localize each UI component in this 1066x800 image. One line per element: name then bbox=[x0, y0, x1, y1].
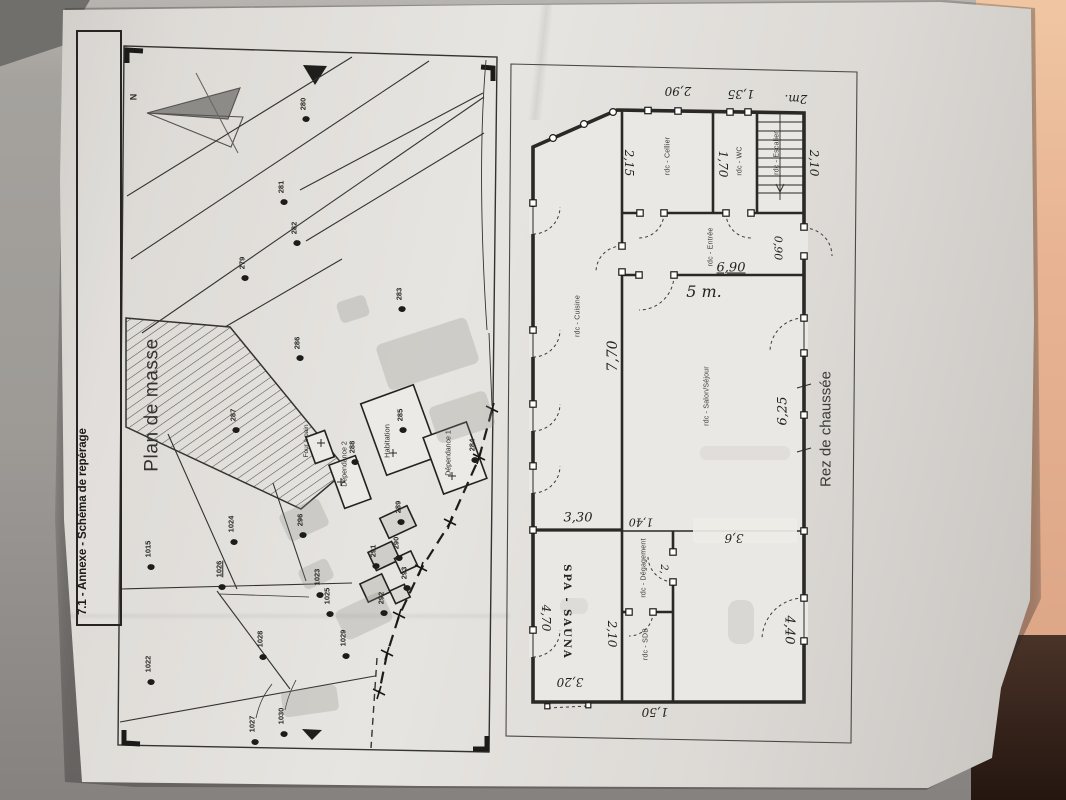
parcel-dot bbox=[397, 518, 406, 526]
parcel-dot bbox=[280, 730, 289, 738]
document-title: 7.1 - Annexe - Schéma de repérage bbox=[77, 428, 89, 615]
building-label: Four à pain bbox=[304, 425, 311, 458]
building-label: Dépendance 2 bbox=[342, 441, 349, 487]
parcel-dot bbox=[299, 531, 308, 539]
parcel-dot bbox=[372, 562, 381, 570]
room-label: rdc - SDB bbox=[643, 628, 650, 660]
photo-of-document: Plan de masse N Rez de chaussée 28028128… bbox=[0, 0, 1066, 800]
parcel-number: 296 bbox=[296, 514, 304, 527]
parcel-number: 280 bbox=[299, 98, 307, 111]
dimension-label: 1,35 bbox=[728, 88, 755, 100]
parcel-dot bbox=[293, 239, 302, 247]
building-label: Dépendance 1 bbox=[446, 430, 453, 476]
dimension-label: 3,30 bbox=[564, 512, 593, 525]
dimension-label: 4,40 bbox=[783, 616, 796, 645]
parcel-number: 293 bbox=[400, 567, 408, 580]
parcel-dot bbox=[147, 678, 156, 686]
dimension-label: 3,20 bbox=[557, 676, 584, 688]
dimension-label: 6,25 bbox=[777, 397, 790, 426]
dimension-label: 5 m. bbox=[686, 284, 722, 300]
dimension-label: 1,40 bbox=[629, 517, 654, 528]
room-label: rdc - Escalier bbox=[774, 131, 781, 175]
paper-sheet: Plan de masse N Rez de chaussée 28028128… bbox=[0, 0, 1066, 800]
parcel-number: 287 bbox=[229, 409, 237, 422]
parcel-dot bbox=[232, 426, 241, 434]
parcel-dot bbox=[251, 738, 260, 746]
north-label: N bbox=[130, 94, 139, 101]
parcel-number: 286 bbox=[293, 337, 301, 350]
parcel-dot bbox=[241, 274, 250, 282]
parcel-number: 1025 bbox=[323, 588, 331, 605]
parcel-dot bbox=[399, 426, 408, 434]
parcel-dot bbox=[218, 583, 227, 591]
room-label: rdc - Cuisine bbox=[575, 295, 582, 337]
parcel-number: 292 bbox=[377, 592, 385, 605]
dimension-label: 2,10 bbox=[606, 621, 618, 648]
dimension-label: 4,70 bbox=[540, 605, 552, 632]
parcel-dot bbox=[280, 198, 289, 206]
document-title-strip: 7.1 - Annexe - Schéma de repérage bbox=[76, 30, 122, 626]
parcel-dot bbox=[398, 305, 407, 313]
parcel-number: 291 bbox=[369, 545, 377, 558]
parcel-number: 1030 bbox=[277, 708, 285, 725]
parcel-number: 284 bbox=[468, 439, 476, 452]
parcel-dot bbox=[471, 456, 480, 464]
parcel-number: 290 bbox=[392, 537, 400, 550]
parcel-dot bbox=[230, 538, 239, 546]
dimension-label: 2,15 bbox=[623, 150, 635, 177]
dimension-label: 1,50 bbox=[642, 706, 669, 718]
parcel-dot bbox=[342, 652, 351, 660]
room-label: rdc - Entrée bbox=[708, 228, 715, 267]
dimension-label: 1,70 bbox=[717, 151, 729, 178]
parcel-dot bbox=[403, 584, 412, 592]
dimension-label: 2,10 bbox=[808, 150, 820, 177]
parcel-number: 282 bbox=[290, 222, 298, 235]
room-label: rdc - Dégagement bbox=[641, 538, 648, 597]
floor-plan-title: Rez de chaussée bbox=[819, 371, 834, 487]
room-label: rdc - Cellier bbox=[665, 137, 672, 175]
parcel-number: 289 bbox=[394, 501, 402, 514]
parcel-dot bbox=[380, 609, 389, 617]
dimension-label: 0,90 bbox=[773, 236, 784, 261]
parcel-number: 1026 bbox=[215, 561, 223, 578]
parcel-number: 1027 bbox=[248, 716, 256, 733]
parcel-number: 285 bbox=[396, 409, 404, 422]
room-label: rdc - Salon/Séjour bbox=[704, 366, 711, 426]
parcel-number: 288 bbox=[348, 441, 356, 454]
parcel-number: 1028 bbox=[256, 631, 264, 648]
parcel-dot bbox=[326, 610, 335, 618]
plan-labels-layer: Plan de masse N Rez de chaussée 28028128… bbox=[0, 0, 1066, 800]
parcel-number: 1015 bbox=[144, 541, 152, 558]
room-label: rdc - WC bbox=[737, 146, 744, 175]
parcel-number: 281 bbox=[277, 181, 285, 194]
parcel-dot bbox=[351, 458, 360, 466]
dimension-label: 6,90 bbox=[717, 262, 746, 275]
dimension-label: 2m. bbox=[785, 93, 808, 105]
dimension-label: SPA - SAUNA bbox=[561, 564, 571, 660]
parcel-dot bbox=[302, 115, 311, 123]
parcel-dot bbox=[147, 563, 156, 571]
parcel-dot bbox=[296, 354, 305, 362]
parcel-number: 1023 bbox=[313, 569, 321, 586]
parcel-number: 1022 bbox=[144, 656, 152, 673]
parcel-number: 283 bbox=[395, 288, 403, 301]
parcel-number: 1024 bbox=[227, 516, 235, 533]
dimension-label: 2,90 bbox=[665, 85, 692, 97]
dimension-label: 3,6 bbox=[724, 532, 743, 544]
building-label: Habitation bbox=[383, 424, 391, 458]
dimension-label: 7,70 bbox=[606, 340, 620, 371]
parcel-number: 1029 bbox=[339, 630, 347, 647]
parcel-dot bbox=[259, 653, 268, 661]
parcel-number: 279 bbox=[238, 257, 246, 270]
site-plan-title: Plan de masse bbox=[143, 338, 162, 471]
parcel-dot bbox=[395, 554, 404, 562]
dimension-label: 2, bbox=[658, 564, 668, 574]
